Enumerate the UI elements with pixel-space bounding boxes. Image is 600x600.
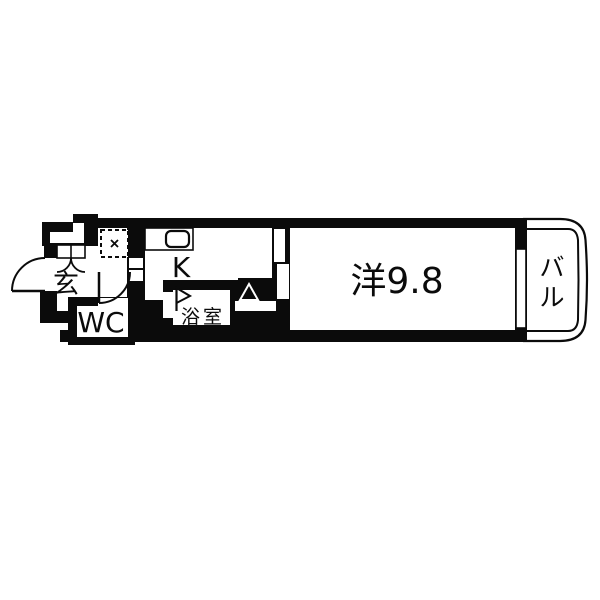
- room-label-balcony-char-2: ル: [539, 283, 564, 312]
- floor-plan-page: 玄 WC K 浴室 洋9.8 バ ル: [0, 0, 600, 600]
- bathroom-doorway-gap: [163, 292, 173, 318]
- room-label-bathroom: 浴室: [181, 306, 225, 328]
- wall-mid-block: [135, 300, 163, 333]
- shelf-bar: [235, 301, 276, 311]
- room-label-balcony: バ ル: [539, 253, 564, 312]
- sliding-door-panel-upper: [274, 229, 285, 262]
- hall-door-gap-lower: [129, 270, 143, 281]
- room-label-main-room: 洋9.8: [350, 261, 443, 302]
- room-label-entrance: 玄: [53, 270, 79, 300]
- room-label-balcony-char-1: バ: [539, 253, 564, 282]
- kitchen-sink-icon: [145, 228, 193, 250]
- room-label-toilet: WC: [77, 306, 124, 339]
- wall-bottom-left: [40, 311, 72, 323]
- wall-bottom: [60, 330, 527, 342]
- room-label-kitchen: K: [172, 251, 191, 284]
- shoe-counter-notch: [73, 223, 84, 233]
- sliding-door-panel-lower: [277, 264, 289, 299]
- kitchen-sink: [166, 231, 189, 247]
- hall-door-gap-upper: [129, 258, 143, 268]
- window-icon: [516, 249, 526, 328]
- wall-top: [73, 218, 523, 228]
- shoe-counter-strip: [50, 232, 84, 243]
- floor-plan-canvas: 玄 WC K 浴室 洋9.8 バ ル: [0, 0, 600, 600]
- laundry-space-icon: [101, 230, 128, 257]
